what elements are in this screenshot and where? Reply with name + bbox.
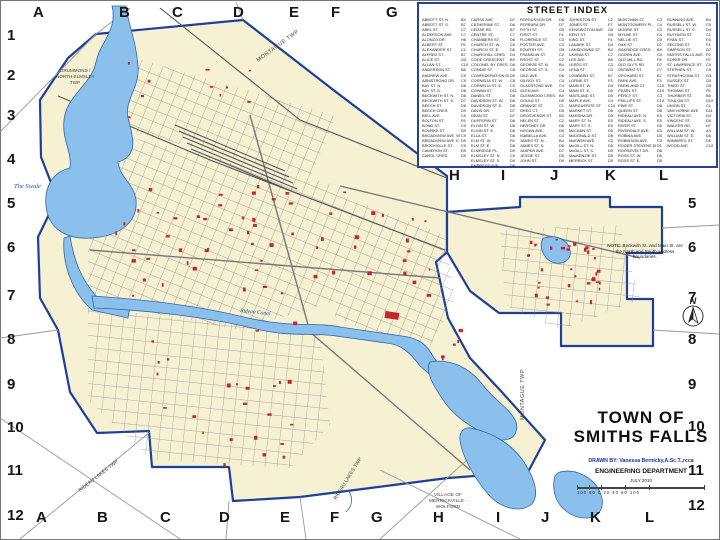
grid-label-L: L	[659, 168, 668, 183]
grid-label-11: 11	[7, 463, 23, 478]
grid-label-C: C	[172, 5, 183, 20]
street-index-column-1: ABBOTT ST. N.B4ABBOTT ST. S.B7ABEL ST.C7…	[422, 17, 469, 168]
street-index-column-3: FERGUSSON DR.D8FERRARA DR.D7FIFTH ST.G5F…	[520, 17, 567, 168]
street-index-entry: JOHN ST.D9	[520, 158, 567, 163]
grid-label-D: D	[233, 5, 244, 20]
grid-label-K: K	[605, 168, 616, 183]
scale-labels: 100 50 0 20 40 60 100	[577, 490, 705, 495]
village-label: VILLAGE OF	[434, 492, 462, 498]
grid-label-K: K	[590, 510, 601, 525]
department-label: ENGINEERING DEPARTMENT	[556, 468, 720, 475]
montague-twp-label-east: MONTAGUE TWP	[520, 369, 526, 420]
drawn-by-credit: DRAWN BY: Vanessa Bernicky,A.Sc.T.,rcca	[556, 458, 720, 464]
address-boundary-note: NOTE: Beckwith St. and Main St. are the …	[604, 243, 686, 260]
grid-label-A: A	[33, 5, 44, 20]
title-block: TOWN OF SMITHS FALLS DRAWN BY: Vanessa B…	[556, 408, 720, 495]
map-title-line1: TOWN OF	[556, 408, 720, 427]
grid-label-F: F	[331, 5, 340, 20]
svg-text:MERRICKVILLE -: MERRICKVILLE -	[429, 498, 468, 504]
street-index-entry: CAROL CRES.D9	[422, 153, 469, 158]
grid-label-5: 5	[7, 196, 15, 211]
grid-label-G: G	[386, 5, 398, 20]
street-index-columns: ABBOTT ST. N.B4ABBOTT ST. S.B7ABEL ST.C7…	[419, 16, 716, 168]
grid-label-E: E	[280, 510, 290, 525]
street-index-panel: STREET INDEX ABBOTT ST. N.B4ABBOTT ST. S…	[417, 2, 718, 168]
grid-label-3: 3	[7, 108, 15, 123]
grid-label-J: J	[541, 510, 549, 525]
street-index-entry: MERRICK ST.D5	[569, 158, 616, 163]
grid-label-J: J	[550, 168, 558, 183]
grid-label-E: E	[289, 5, 299, 20]
grid-label-9: 9	[7, 377, 15, 392]
grid-label-9: 9	[688, 377, 696, 392]
grid-label-D: D	[219, 510, 230, 525]
scale-bar: 100 50 0 20 40 60 100	[577, 487, 705, 495]
grid-label-C: C	[160, 510, 171, 525]
street-index-entry: ROSS ST. E.D5	[618, 158, 665, 163]
grid-label-I: I	[501, 168, 505, 183]
map-title-line2: SMITHS FALLS	[556, 427, 720, 446]
grid-label-B: B	[119, 5, 130, 20]
grid-label-1: 1	[7, 28, 15, 43]
grid-label-2: 2	[7, 68, 15, 83]
street-index-column-5: MONTMAN ST.C3MONTGOMERY PL.C4MOORE ST.C3…	[618, 17, 665, 168]
grid-label-6: 6	[7, 240, 15, 255]
grid-label-8: 8	[688, 332, 696, 347]
grid-label-H: H	[449, 168, 460, 183]
street-index-entry: WOOD AVE.C10	[667, 143, 714, 148]
grid-label-12: 12	[7, 508, 24, 523]
grid-label-7: 7	[7, 288, 15, 303]
grid-label-5: 5	[688, 196, 696, 211]
grid-label-8: 8	[7, 332, 15, 347]
grid-label-I: I	[496, 510, 500, 525]
grid-label-6: 6	[688, 240, 696, 255]
rideau-lakes-label-1: RIDEAU LAKES TWP	[78, 458, 121, 493]
swale-label: The Swale	[14, 183, 41, 190]
svg-text:TWP: TWP	[70, 80, 80, 85]
drummond-twp-label: DRUMMOND /	[60, 68, 91, 73]
street-index-column-2: CARSS AVE.D7CATHERINE ST.D6CEDAR RD.B7CE…	[471, 17, 518, 168]
grid-label-G: G	[371, 510, 383, 525]
grid-label-A: A	[36, 510, 47, 525]
svg-text:NORTH ELMSLEY: NORTH ELMSLEY	[56, 74, 95, 79]
grid-label-L: L	[645, 510, 654, 525]
street-index-column-4: JOHNSTON ST.C2JONES ST.F7KENSINGTON AVE.…	[569, 17, 616, 168]
street-index-title: STREET INDEX	[419, 4, 716, 16]
grid-label-12: 12	[688, 498, 705, 513]
grid-label-B: B	[97, 510, 108, 525]
grid-label-10: 10	[7, 420, 24, 435]
street-index-entry: EMPRESS AVE.D9	[471, 163, 518, 168]
grid-label-F: F	[330, 510, 339, 525]
grid-label-4: 4	[7, 152, 15, 167]
grid-label-H: H	[433, 510, 444, 525]
grid-label-7: 7	[688, 290, 696, 305]
street-index-column-6: RUNNING AVE.B4RUSSELL ST. W.C9RUSSELL ST…	[667, 17, 714, 168]
map-date: JULY 2010	[556, 478, 720, 483]
